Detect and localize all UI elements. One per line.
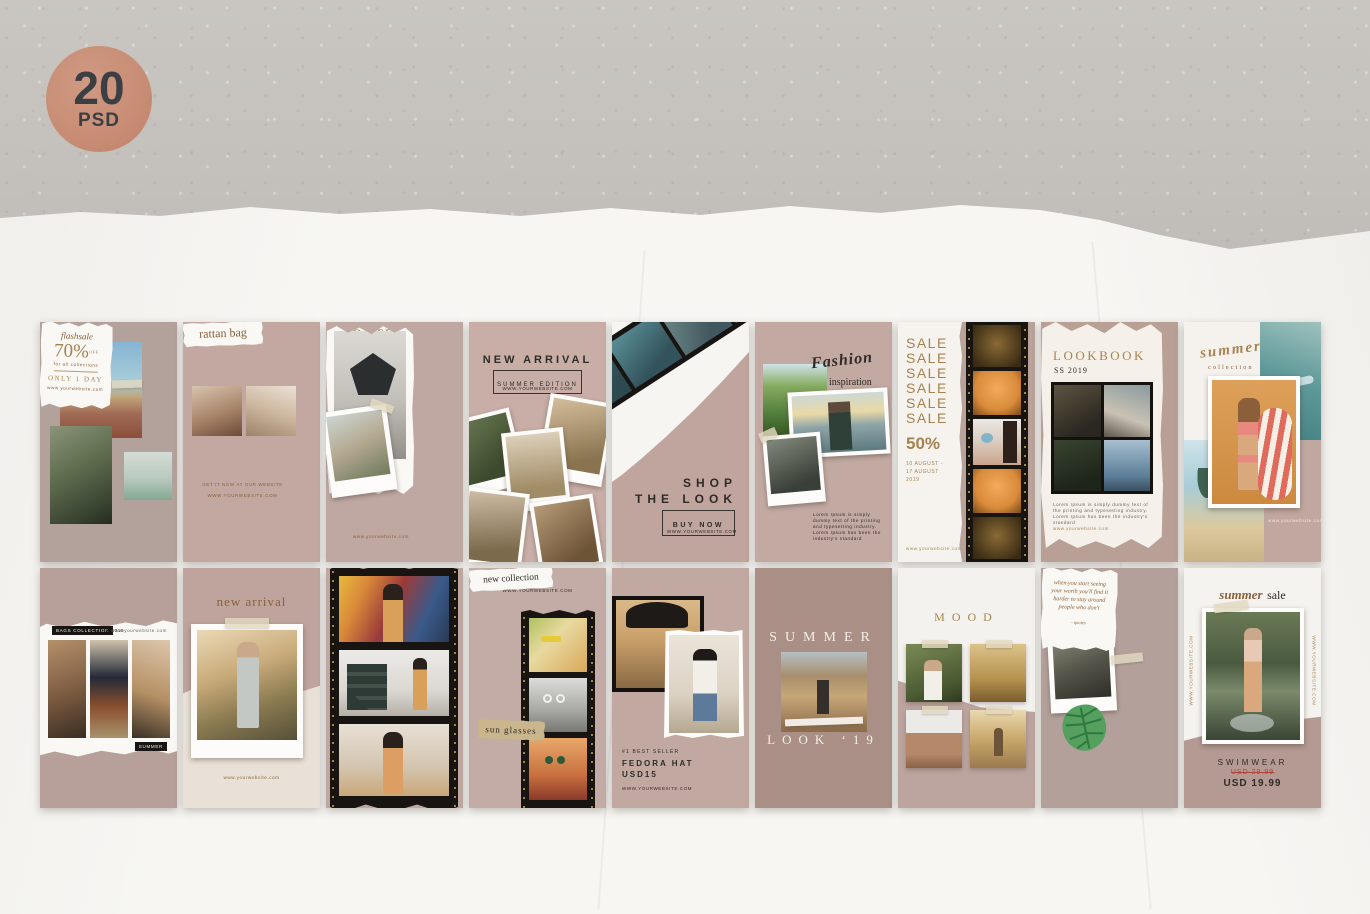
tape xyxy=(986,706,1012,714)
vertical-film-strip xyxy=(521,610,595,808)
film-frame-1 xyxy=(973,325,1021,367)
swimwear-price: USD 19.99 xyxy=(1184,778,1321,789)
flash-sale-panel: flashsale 70%OFF for all collections ONL… xyxy=(40,322,113,409)
buy-now-label: BUY NOW xyxy=(673,522,724,529)
monstera-leaf-icon xyxy=(1054,695,1117,761)
sale-date2: 17 AUGUST xyxy=(906,468,943,476)
film-sprockets xyxy=(1024,322,1026,562)
sale-line: SALE xyxy=(906,351,948,366)
bag-photo-1 xyxy=(48,640,86,738)
photo xyxy=(469,491,525,562)
dress-polaroid xyxy=(191,624,303,758)
striped-float xyxy=(1258,408,1292,500)
sale-percent: 50% xyxy=(906,434,940,454)
lookbook-title: LOOKBOOK xyxy=(1053,348,1146,364)
photo xyxy=(505,431,565,500)
lookbook-panel: LOOKBOOK SS 2019 Lorem Ipsum is simply d… xyxy=(1041,322,1163,548)
vertical-film-strip xyxy=(330,568,458,808)
story-card-ootd: #OOTD www.yourwebsite.com xyxy=(326,322,463,562)
model-figure xyxy=(383,732,403,794)
pentagon-window xyxy=(350,353,396,395)
inspiration-label: inspiration xyxy=(829,377,872,388)
rattan-label: rattan bag xyxy=(183,322,263,347)
shop-line2: THE LOOK xyxy=(635,492,737,506)
sale-line: SALE xyxy=(906,336,948,351)
fedora-eyebrow: #1 BEST SELLER xyxy=(622,749,679,755)
story-card-swimwear: summer sale WWW.YOURWEBSITE.COM WWW.YOUR… xyxy=(1184,568,1321,808)
summer-look-line2: LOOK ‘19 xyxy=(755,732,892,748)
psd-count-badge: 20 PSD xyxy=(46,46,152,152)
hat-model-photo xyxy=(326,409,390,481)
film-photo-floral xyxy=(339,724,449,796)
mood-title: MOOD xyxy=(898,610,1035,625)
photo xyxy=(766,436,821,494)
lookbook-body: Lorem Ipsum is simply dummy text of the … xyxy=(1053,502,1151,526)
fedora-website: WWW.YOURWEBSITE.COM xyxy=(622,786,692,791)
bags-summer-badge: SUMMER xyxy=(135,742,167,751)
quote-paper: when you start seeing your worth you'll … xyxy=(1041,568,1118,651)
quote-credit: - quotes xyxy=(1048,619,1108,626)
bag-photo-2 xyxy=(90,640,128,738)
model-figure xyxy=(383,584,403,642)
story-card-lookbook: LOOKBOOK SS 2019 Lorem Ipsum is simply d… xyxy=(1041,322,1178,562)
flash-sale-off: OFF xyxy=(89,349,99,354)
story-card-fedora-hat: #1 BEST SELLER FEDORA HAT USD15 WWW.YOUR… xyxy=(612,568,749,808)
model-van-photo xyxy=(50,426,112,524)
photo xyxy=(534,498,599,562)
new-arrival-title: NEW ARRIVAL xyxy=(469,354,606,366)
summer-script: summer xyxy=(1199,338,1263,362)
tape xyxy=(1111,652,1144,664)
collection-label: collection xyxy=(1208,364,1254,371)
ootd-website: www.yourwebsite.com xyxy=(326,534,436,539)
divider xyxy=(54,370,98,373)
story-card-rattan-bag: rattan bag GET IT NOW AT OUR WEBSITE WWW… xyxy=(183,322,320,562)
dress-figure xyxy=(237,642,259,728)
swimwear-photo-frame xyxy=(1202,608,1304,744)
car-polaroid xyxy=(762,432,826,507)
film-frame-2 xyxy=(973,371,1021,415)
sun-glasses-label: sun glasses xyxy=(477,719,546,741)
bags-website: www.yourwebsite.com xyxy=(111,628,167,633)
white-dress-figure xyxy=(924,660,942,700)
film-sprockets xyxy=(591,610,593,808)
fashion-script: Fashion xyxy=(810,349,874,373)
polaroid-4 xyxy=(469,486,530,562)
story-card-summer-look: SUMMER LOOK ‘19 xyxy=(755,568,892,808)
swimsuit-figure xyxy=(1244,628,1262,712)
mood-photo-3 xyxy=(906,710,962,768)
new-arrival2-title: new arrival xyxy=(183,594,320,610)
grid-photo-3 xyxy=(1054,440,1101,492)
template-grid: flashsale 70%OFF for all collections ONL… xyxy=(40,322,1321,808)
story-card-quote: when you start seeing your worth you'll … xyxy=(1041,568,1178,808)
tape xyxy=(112,379,142,388)
person-silhouette xyxy=(828,401,852,450)
summercol-website: www.yourwebsite.com xyxy=(1268,518,1321,523)
story-card-fashion-inspiration: Fashion inspiration Lorem Ipsum is simpl… xyxy=(755,322,892,562)
new-collection-text: new collection xyxy=(483,573,539,586)
tape xyxy=(225,618,269,628)
shop-website: WWW.YOURWEBSITE.COM xyxy=(667,529,737,534)
sunglasses-shape xyxy=(556,694,565,703)
sale-date1: 10 AUGUST - xyxy=(906,460,943,468)
psd-count-label: PSD xyxy=(78,110,120,132)
sale-website: www.yourwebsite.com xyxy=(906,546,962,551)
fedora-line1: FEDORA HAT xyxy=(622,759,694,768)
story-card-summer-collection: summer collection www.yourwebsite.com xyxy=(1184,322,1321,562)
swimwear-website-right: WWW.YOURWEBSITE.COM xyxy=(1312,636,1317,706)
sale-dates: 10 AUGUST - 17 AUGUST 2019 xyxy=(906,460,943,484)
summer-sale-title: summer sale xyxy=(1184,586,1321,604)
story-card-mood: MOOD xyxy=(898,568,1035,808)
bag-photo-3 xyxy=(132,640,170,738)
lookbook-season: SS 2019 xyxy=(1054,366,1088,375)
grid-photo-2 xyxy=(1104,385,1151,437)
film-photo-stairs xyxy=(339,650,449,716)
film-frame-5 xyxy=(973,517,1021,559)
sale-label: sale xyxy=(1267,588,1286,602)
jungle-photo xyxy=(1206,612,1300,740)
quote-text: when you start seeing your worth you'll … xyxy=(1049,579,1110,613)
hair-shape xyxy=(1003,421,1017,463)
summer-look-line1: SUMMER xyxy=(755,630,892,646)
stairs-shape xyxy=(347,664,387,710)
sun-glasses-text: sun glasses xyxy=(485,724,537,736)
story-card-bags-collection: BAGS COLLECTION ■ 2019 www.yourwebsite.c… xyxy=(40,568,177,808)
lookbook-photo-grid xyxy=(1051,382,1153,494)
fashion-body: Lorem Ipsum is simply dummy text of the … xyxy=(813,512,885,542)
shorts-photo xyxy=(124,452,172,500)
new-arrival2-website: www.yourwebsite.com xyxy=(183,775,320,780)
film-photo-mural xyxy=(339,576,449,642)
mood-photo-4 xyxy=(970,710,1026,768)
film-photo-yellow-glasses xyxy=(529,618,587,672)
model-figure xyxy=(693,649,717,721)
sale-line: SALE xyxy=(906,396,948,411)
film-frame-3 xyxy=(973,419,1021,465)
story-card-new-arrival-polaroid: new arrival www.yourwebsite.com xyxy=(183,568,320,808)
ootd-polaroid xyxy=(326,404,398,498)
flash-sale-website: www.yourwebsite.com xyxy=(40,385,111,393)
rattan-photo-right xyxy=(246,386,296,436)
swimwear-product: SWIMWEAR xyxy=(1184,758,1321,767)
sunglasses-shape xyxy=(543,694,552,703)
sunglasses-shape xyxy=(545,756,553,764)
polaroid-5 xyxy=(529,493,605,562)
flash-sale-percent: 70%OFF xyxy=(40,342,113,363)
mood-photo-1 xyxy=(906,644,962,702)
creek-highlight xyxy=(1230,714,1274,732)
grid-photo-1 xyxy=(1054,385,1101,437)
rattan-website: WWW.YOURWEBSITE.COM xyxy=(183,493,302,498)
tape xyxy=(922,640,948,648)
story-card-sunglasses: WWW.YOURWEBSITE.COM new collection sun g… xyxy=(469,568,606,808)
rattan-photo-left xyxy=(192,386,242,436)
story-card-new-arrival-summer: NEW ARRIVAL SUMMER EDITION WWW.YOURWEBSI… xyxy=(469,322,606,562)
bikini-photo xyxy=(1212,380,1296,504)
flash-sale-only: ONLY 1 DAY xyxy=(40,374,112,385)
story-card-flash-sale: flashsale 70%OFF for all collections ONL… xyxy=(40,322,177,562)
fedora-white-photo xyxy=(664,630,744,738)
model-figure xyxy=(413,658,427,710)
grid-photo-4 xyxy=(1104,440,1151,492)
sunglasses-flower xyxy=(981,433,993,443)
lookbook-website: www.yourwebsite.com xyxy=(1053,526,1109,531)
tape xyxy=(922,706,948,714)
model-figure xyxy=(1238,398,1260,490)
sale-white-panel: SALE SALE SALE SALE SALE SALE 50% 10 AUG… xyxy=(898,322,962,562)
sunglasses-shape xyxy=(541,636,561,642)
psd-count-number: 20 xyxy=(73,66,124,110)
fedora-line2: USD15 xyxy=(622,770,658,779)
swimwear-website-left: WWW.YOURWEBSITE.COM xyxy=(1189,636,1194,706)
new-arrival-website: WWW.YOURWEBSITE.COM xyxy=(469,386,606,391)
sunglasses-shape xyxy=(557,756,565,764)
sale-line: SALE xyxy=(906,381,948,396)
sale-line: SALE xyxy=(906,366,948,381)
film-photo-green-glasses xyxy=(529,738,587,800)
film-frame-4 xyxy=(973,469,1021,513)
film-sprockets xyxy=(523,610,525,808)
fedora-hat-shape xyxy=(626,602,688,628)
film-sprockets xyxy=(968,322,970,562)
bags-collection-badge: BAGS COLLECTION xyxy=(52,626,113,635)
dress-photo xyxy=(197,630,297,740)
rattan-cta: GET IT NOW AT OUR WEBSITE xyxy=(183,482,302,487)
street-style-photo xyxy=(669,635,739,733)
sale-lines: SALE SALE SALE SALE SALE SALE xyxy=(906,336,948,426)
film-sprockets xyxy=(332,568,334,808)
tape xyxy=(986,640,1012,648)
sale-date3: 2019 xyxy=(906,476,943,484)
film-sprockets xyxy=(454,568,456,808)
chair-figure xyxy=(817,680,829,714)
vertical-film-strip xyxy=(966,322,1028,562)
story-card-shop-the-look: SHOP THE LOOK BUY NOW WWW.YOURWEBSITE.CO… xyxy=(612,322,749,562)
walking-figure xyxy=(994,728,1003,756)
story-card-sale-50: SALE SALE SALE SALE SALE SALE 50% 10 AUG… xyxy=(898,322,1035,562)
sale-line: SALE xyxy=(906,411,948,426)
story-card-film-strip xyxy=(326,568,463,808)
mood-photo-2 xyxy=(970,644,1026,702)
swimwear-old-price: USD 29.99 xyxy=(1184,769,1321,776)
shop-line1: SHOP xyxy=(683,476,737,490)
rattan-title: rattan bag xyxy=(183,322,263,346)
bikini-framed-photo xyxy=(1208,376,1300,508)
